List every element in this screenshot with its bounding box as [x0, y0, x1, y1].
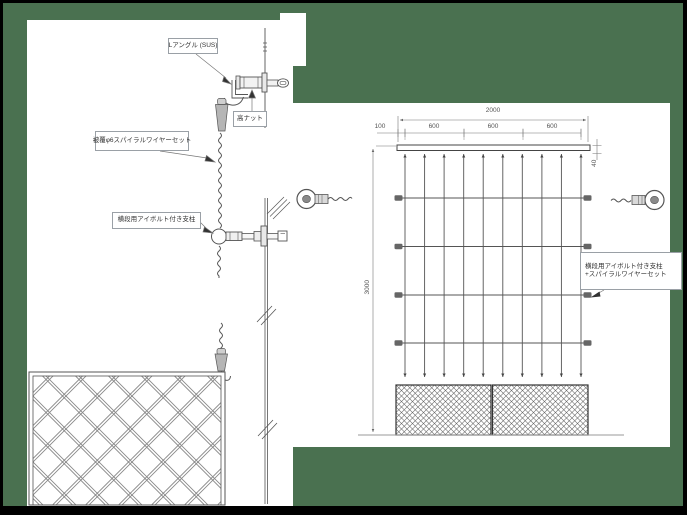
label-eyebolt-post: 横段用アイボルト付き支柱 [112, 212, 201, 229]
dim-spacing-2: 600 [478, 124, 508, 131]
dim-total-width: 2000 [473, 108, 513, 115]
right-anchor-icon [611, 191, 664, 210]
top-support-bar [397, 145, 590, 151]
planter-boxes [396, 385, 588, 435]
label-post-wire-set-line1: 横段用アイボルト付き支柱 [585, 263, 663, 271]
dim-bar-height: 40 [592, 153, 599, 173]
dim-total-height: 3000 [365, 267, 372, 307]
dim-left-offset: 100 [368, 124, 392, 131]
drawing-canvas: Lアングル (SUS) 高ナット 被覆φ6スパイラルワイヤーセット 横段用アイボ… [0, 0, 687, 515]
dim-spacing-3: 600 [537, 124, 567, 131]
lattice-panel [29, 372, 225, 505]
elevation-drawing [358, 145, 624, 435]
label-wire-set: 被覆φ6スパイラルワイヤーセット [95, 131, 189, 151]
left-anchor-icon [297, 190, 352, 209]
label-high-nut: 高ナット [233, 111, 267, 127]
horizontal-wires [395, 195, 592, 346]
label-post-wire-set: 横段用アイボルト付き支柱 +スパイラルワイヤーセット [580, 252, 682, 290]
dim-spacing-1: 600 [419, 124, 449, 131]
vertical-wires [405, 154, 581, 377]
label-l-angle: Lアングル (SUS) [168, 38, 218, 54]
label-post-wire-set-line2: +スパイラルワイヤーセット [585, 271, 667, 279]
combined-label-leader [591, 290, 605, 298]
